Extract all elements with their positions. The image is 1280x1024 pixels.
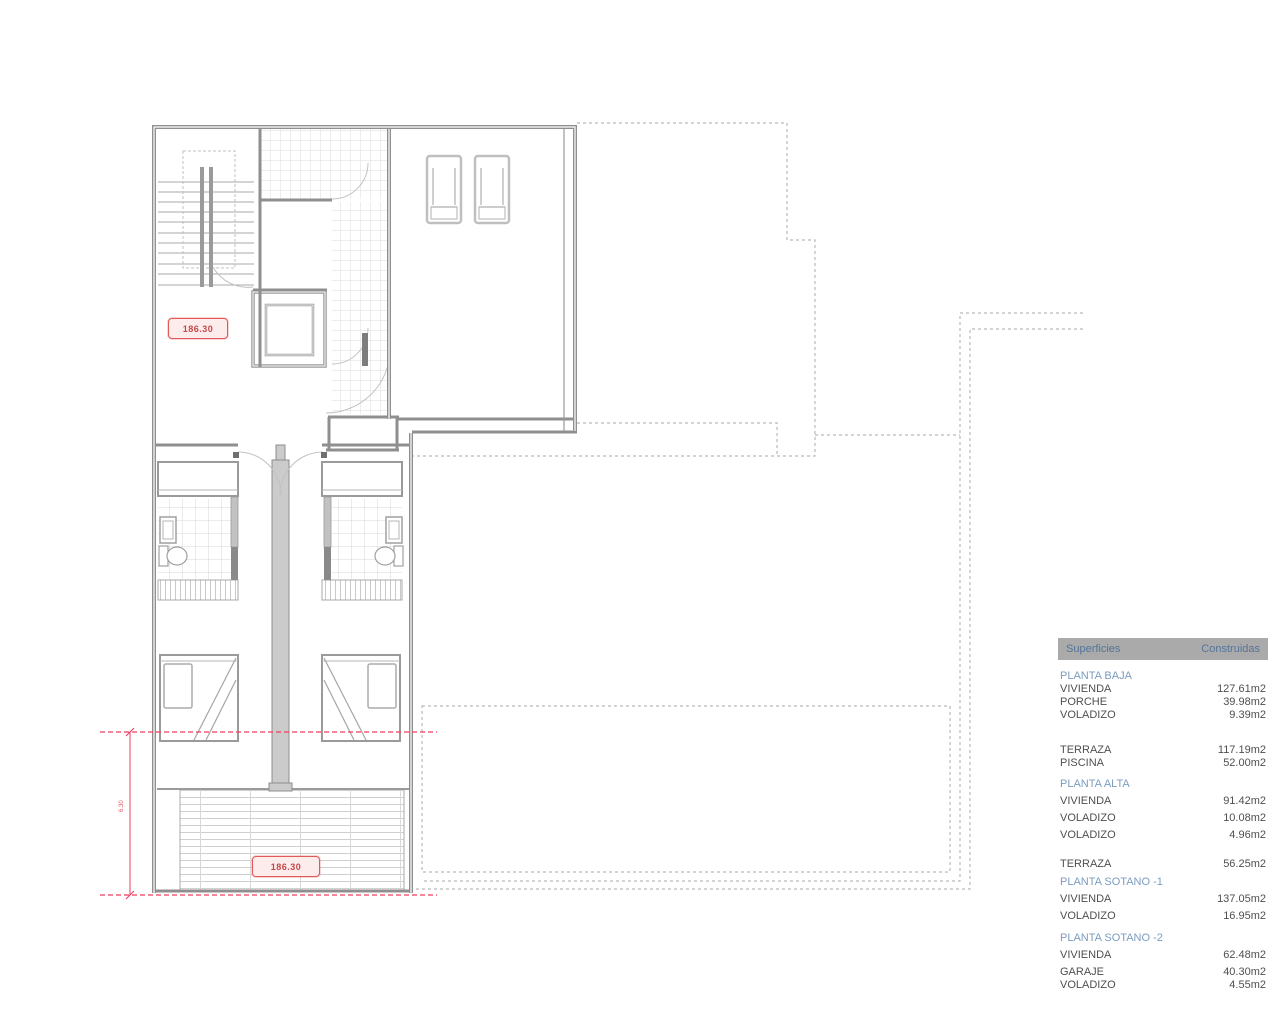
level-label-upper: 186.30 xyxy=(168,318,228,339)
bed-right xyxy=(322,655,400,741)
areas-table: Superficies Construidas PLANTA BAJA VIVI… xyxy=(1058,638,1268,992)
table-row: PORCHE39.98m2 xyxy=(1058,696,1268,709)
level-label-terrace: 186.30 xyxy=(252,856,320,877)
sun-loungers xyxy=(427,156,509,223)
table-row: TERRAZA117.19m2 xyxy=(1058,744,1268,757)
vanity-right xyxy=(322,580,402,600)
table-row: GARAJE40.30m2 xyxy=(1058,966,1268,979)
door-hinge-right xyxy=(321,452,327,458)
table-header: Superficies Construidas xyxy=(1058,638,1268,660)
corridor-center-wall xyxy=(269,445,292,791)
table-row: VOLADIZO9.39m2 xyxy=(1058,709,1268,722)
table-row: VOLADIZO4.55m2 xyxy=(1058,979,1268,992)
table-section: PLANTA SOTANO -1 xyxy=(1058,876,1268,889)
table-row: VIVIENDA137.05m2 xyxy=(1058,893,1268,906)
floorplan-canvas: 186.30 186.30 6.30 Superficies Construid… xyxy=(0,0,1280,1024)
door-hinge-left xyxy=(233,452,239,458)
table-section: PLANTA BAJA xyxy=(1058,670,1268,683)
stair-handrail xyxy=(200,167,204,287)
door-jamb xyxy=(362,333,368,366)
vanity-left xyxy=(158,580,238,600)
projection-outlines xyxy=(413,123,1083,889)
table-row: VOLADIZO4.96m2 xyxy=(1058,829,1268,842)
table-row: TERRAZA56.25m2 xyxy=(1058,858,1268,871)
table-section: PLANTA ALTA xyxy=(1058,778,1268,791)
dimension-text: 6.30 xyxy=(119,800,125,812)
tiled-bathroom-floor xyxy=(262,129,387,414)
table-header-right: Construidas xyxy=(1201,643,1260,655)
table-row: VIVIENDA127.61m2 xyxy=(1058,683,1268,696)
bed-left xyxy=(160,655,238,741)
table-row: VOLADIZO10.08m2 xyxy=(1058,812,1268,825)
table-row: VIVIENDA62.48m2 xyxy=(1058,949,1268,962)
table-header-left: Superficies xyxy=(1066,643,1120,655)
table-section: PLANTA SOTANO -2 xyxy=(1058,932,1268,945)
staircase xyxy=(158,151,254,287)
table-row: PISCINA52.00m2 xyxy=(1058,757,1268,770)
table-row: VOLADIZO16.95m2 xyxy=(1058,910,1268,923)
elevator-shaft xyxy=(253,292,325,366)
table-row: VIVIENDA91.42m2 xyxy=(1058,795,1268,808)
